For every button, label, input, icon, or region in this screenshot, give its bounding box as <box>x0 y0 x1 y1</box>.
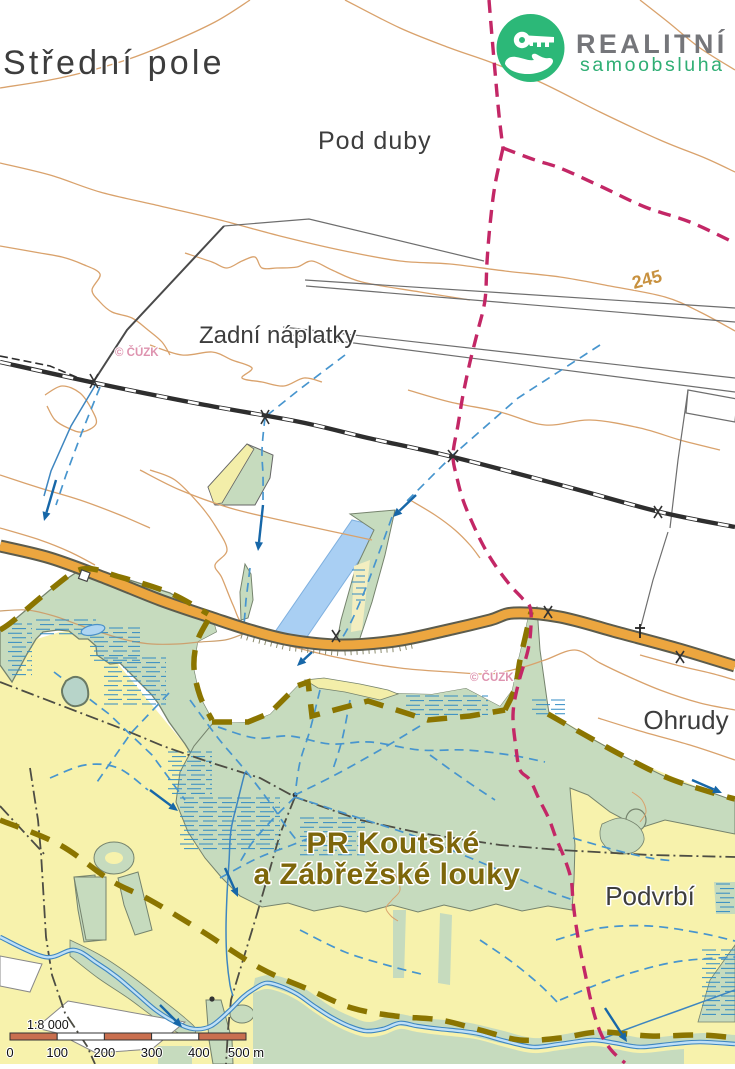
svg-text:300: 300 <box>141 1045 163 1060</box>
svg-text:200: 200 <box>94 1045 116 1060</box>
svg-text:Podvrbí: Podvrbí <box>605 881 695 911</box>
svg-text:© ČÚZK: © ČÚZK <box>115 346 159 359</box>
svg-text:samoobsluha: samoobsluha <box>580 54 725 76</box>
svg-text:500 m: 500 m <box>228 1045 264 1060</box>
svg-text:Zadní náplatky: Zadní náplatky <box>199 322 356 349</box>
svg-text:Pod duby: Pod duby <box>318 127 432 155</box>
svg-text:Střední pole: Střední pole <box>3 44 225 82</box>
svg-text:1:8 000: 1:8 000 <box>27 1018 69 1032</box>
svg-text:Ohrudy: Ohrudy <box>643 705 728 735</box>
svg-text:0: 0 <box>6 1045 13 1060</box>
svg-text:PR Koutské: PR Koutské <box>306 827 479 860</box>
svg-text:a Zábřežské louky: a Zábřežské louky <box>254 858 521 891</box>
svg-text:400: 400 <box>188 1045 210 1060</box>
svg-text:© ČÚZK: © ČÚZK <box>470 671 514 684</box>
svg-text:100: 100 <box>46 1045 68 1060</box>
